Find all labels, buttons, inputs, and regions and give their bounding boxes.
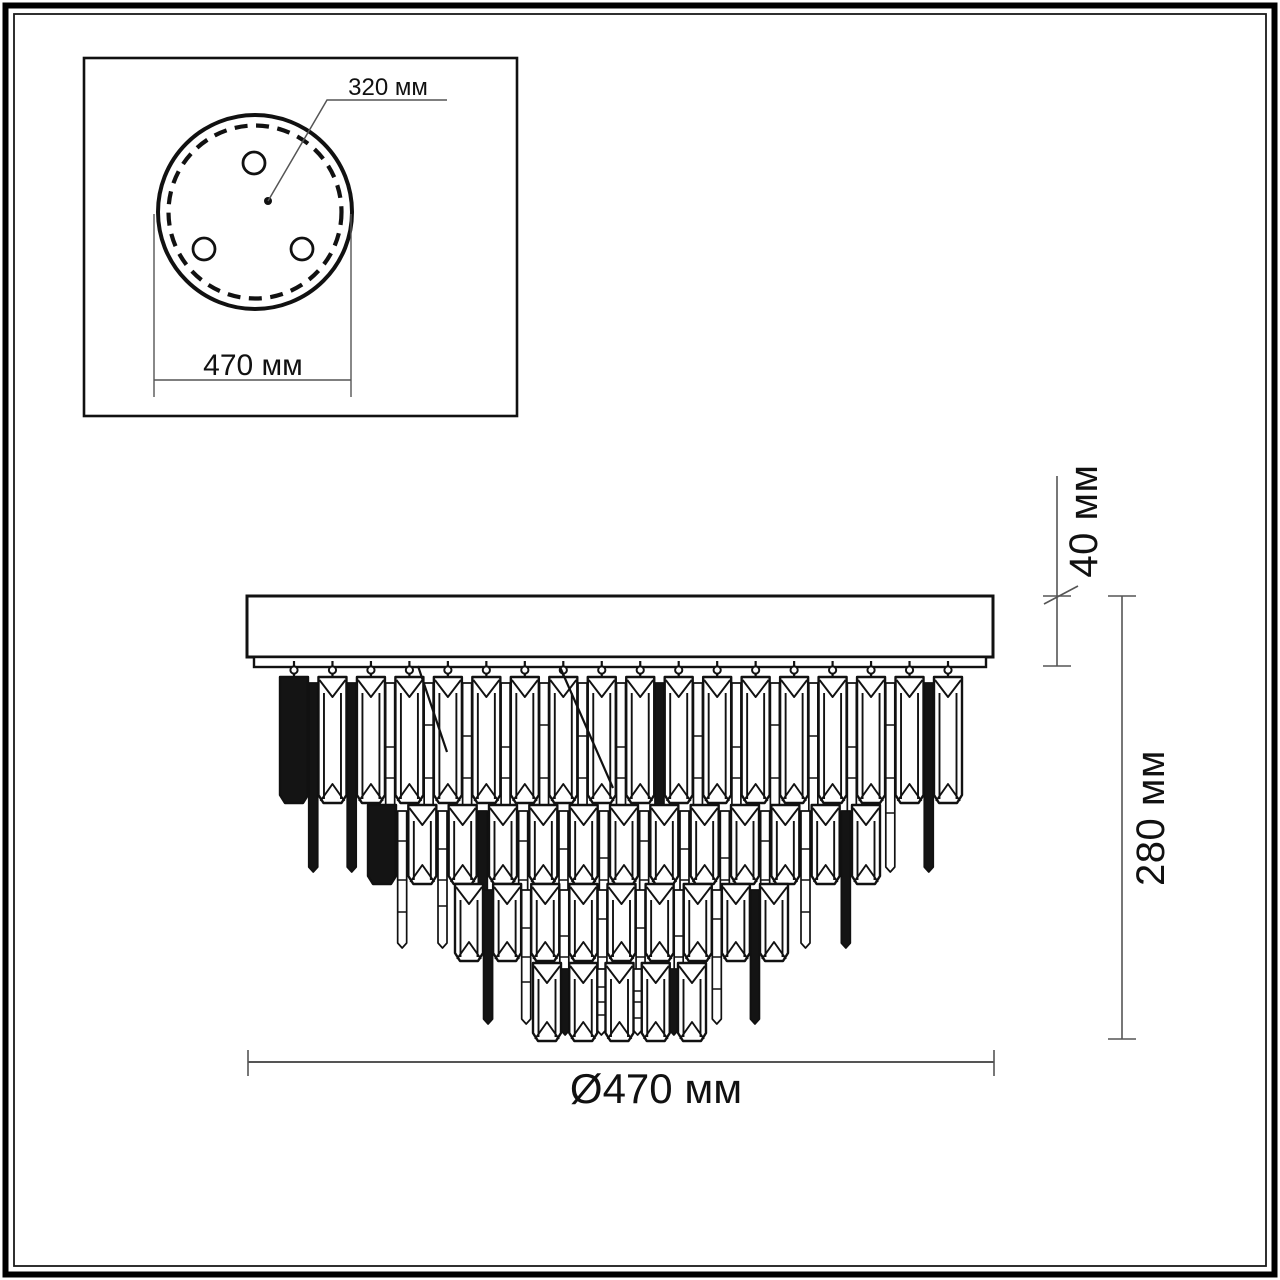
crystal-prism [472, 677, 500, 803]
crystal-prism [570, 805, 598, 884]
crystal-tier-4 [533, 963, 706, 1041]
canopy-height-label: 40 мм [1062, 464, 1106, 577]
pin-hole [752, 666, 759, 673]
crystal-prism [684, 884, 712, 961]
dimension-40: 40 мм [1043, 464, 1106, 666]
chandelier-front-view [247, 596, 993, 1041]
crystal-prism [511, 677, 539, 803]
pin-hole [598, 666, 605, 673]
pin-hole [944, 666, 951, 673]
crystal-prism [760, 884, 788, 961]
crystal-prism [318, 677, 346, 803]
crystal-prism [650, 805, 678, 884]
crystal-prism [610, 805, 638, 884]
mount-spacing-label: 320 мм [348, 74, 428, 101]
crystal-prism [608, 884, 636, 961]
crystal-prism [678, 963, 706, 1041]
crystal-prism [703, 677, 731, 803]
crystal-prism [569, 963, 597, 1041]
canopy-lip [254, 657, 986, 667]
crystal-prism [857, 677, 885, 803]
oblique-tick-40 [1044, 586, 1078, 604]
pin-hole [483, 666, 490, 673]
total-height-label: 280 мм [1129, 750, 1173, 886]
crystal-prism [731, 805, 759, 884]
crystal-tiers [280, 677, 962, 1041]
pin-hole [906, 666, 913, 673]
back-crystal-sliver [347, 683, 356, 872]
back-crystal-sliver [438, 811, 447, 948]
pin-hole [329, 666, 336, 673]
pin-hole [714, 666, 721, 673]
mount-hole-left [193, 238, 215, 260]
back-crystal-sliver [398, 811, 407, 948]
pin-hole [444, 666, 451, 673]
pin-hole [867, 666, 874, 673]
crystal-prism [357, 677, 385, 803]
crystal-prism [626, 677, 654, 803]
crystal-prism [533, 963, 561, 1041]
mounting-plate-inset: 320 мм 470 мм [84, 58, 517, 416]
crystal-prism [934, 677, 962, 803]
back-crystal-sliver [309, 683, 318, 872]
crystal-prism [852, 805, 880, 884]
dimension-470: Ø470 мм [248, 1050, 994, 1112]
crystal-prism [642, 963, 670, 1041]
crystal-prism [606, 963, 634, 1041]
dimension-drawing-svg: 320 мм 470 мм 40 мм 280 мм [0, 0, 1280, 1280]
pin-hole [829, 666, 836, 673]
crystal-prism [449, 805, 477, 884]
crystal-prism [434, 677, 462, 803]
pin-hole [406, 666, 413, 673]
crystal-prism [531, 884, 559, 961]
crystal-prism [493, 884, 521, 961]
crystal-prism [646, 884, 674, 961]
pin-hole [521, 666, 528, 673]
crystal-prism [722, 884, 750, 961]
crystal-prism [455, 884, 483, 961]
back-crystal-sliver [750, 890, 759, 1024]
crystal-prism [780, 677, 808, 803]
crystal-prism [569, 884, 597, 961]
crystal-prism [896, 677, 924, 803]
crystal-prism [529, 805, 557, 884]
crystal-prism [395, 677, 423, 803]
crystal-prism [771, 805, 799, 884]
back-crystal-sliver [841, 811, 850, 948]
back-crystal-sliver [924, 683, 933, 872]
back-crystal-sliver [801, 811, 810, 948]
crystal-prism [812, 805, 840, 884]
pin-hole [637, 666, 644, 673]
crystal-prism [742, 677, 770, 803]
back-crystal-sliver [484, 890, 493, 1024]
crystal-prism [819, 677, 847, 803]
crystal-prism [691, 805, 719, 884]
diameter-label: Ø470 мм [570, 1065, 742, 1112]
mount-hole-top [243, 152, 265, 174]
dimension-280: 280 мм [1108, 596, 1173, 1039]
back-crystal-sliver [886, 683, 895, 872]
crystal-prism [408, 805, 436, 884]
ceiling-canopy [247, 596, 993, 657]
crystal-prism [280, 677, 308, 803]
pin-hole [675, 666, 682, 673]
back-crystal-sliver [712, 890, 721, 1024]
crystal-prism [489, 805, 517, 884]
crystal-prism [665, 677, 693, 803]
mount-hole-right [291, 238, 313, 260]
pin-hole [791, 666, 798, 673]
crystal-prism [368, 805, 396, 884]
pin-hole [367, 666, 374, 673]
back-crystal-sliver [522, 890, 531, 1024]
drawing-sheet: 320 мм 470 мм 40 мм 280 мм [0, 0, 1280, 1280]
plate-diameter-label: 470 мм [203, 349, 303, 382]
pin-hole [290, 666, 297, 673]
